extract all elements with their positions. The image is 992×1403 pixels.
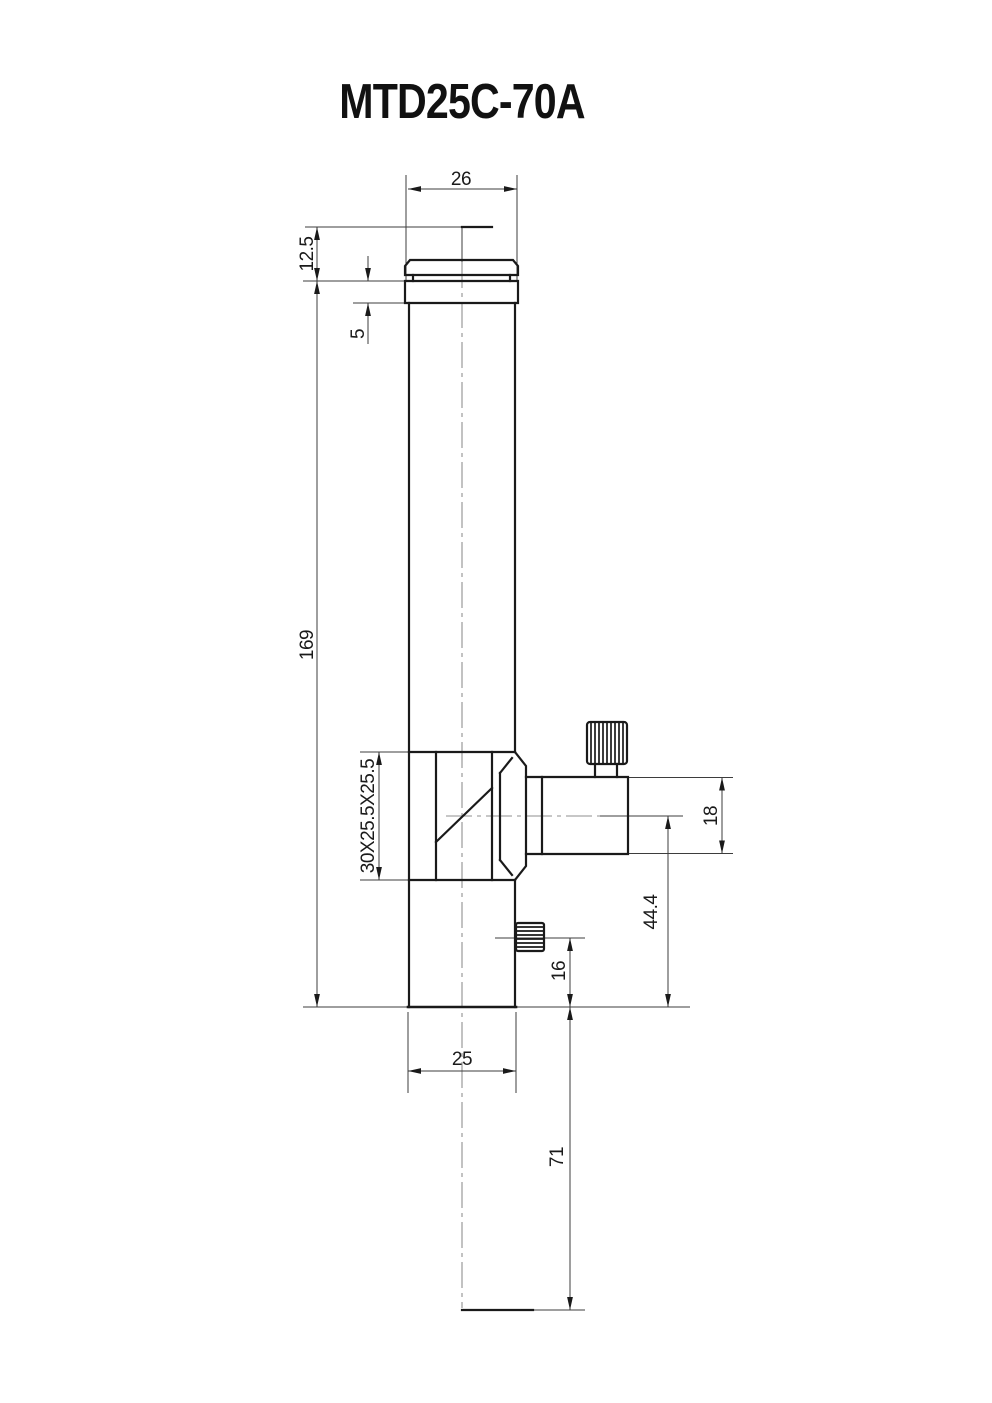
boss-chamfer-bottom bbox=[500, 860, 512, 875]
lock-screw bbox=[516, 923, 544, 951]
dim-label-screw-axis-to-base: 16 bbox=[549, 961, 570, 981]
dim-label-port-axis-to-base: 44.4 bbox=[641, 894, 662, 930]
dim-label-collar-height: 5 bbox=[348, 329, 369, 339]
dim-label-top-offset: 12.5 bbox=[297, 237, 318, 272]
dim-label-side-port-height: 18 bbox=[701, 806, 722, 826]
dim-label-cube-size: 30X25.5X25.5 bbox=[358, 759, 379, 873]
thumbscrew-knurling bbox=[591, 722, 623, 764]
boss-chamfer-top bbox=[500, 758, 512, 773]
extension-lines bbox=[303, 175, 733, 1310]
drawing-sheet: MTD25C-70A bbox=[0, 0, 992, 1403]
dimension-lines bbox=[317, 189, 722, 1310]
mirror-diagonal bbox=[436, 788, 492, 842]
technical-drawing: 26 12.5 5 169 30X25.5X25.5 18 44.4 16 71… bbox=[0, 0, 992, 1403]
dim-label-base-to-ref: 71 bbox=[547, 1147, 568, 1167]
dimension-labels: 26 12.5 5 169 30X25.5X25.5 18 44.4 16 71… bbox=[297, 169, 722, 1167]
dim-label-tube-width: 25 bbox=[452, 1049, 472, 1070]
dim-label-body-length: 169 bbox=[297, 630, 318, 660]
centerlines bbox=[446, 227, 600, 1308]
side-thumbscrew bbox=[587, 722, 627, 777]
part-outline bbox=[405, 260, 628, 1007]
lock-screw-knurling bbox=[517, 927, 543, 947]
dim-label-top-width: 26 bbox=[451, 169, 471, 190]
